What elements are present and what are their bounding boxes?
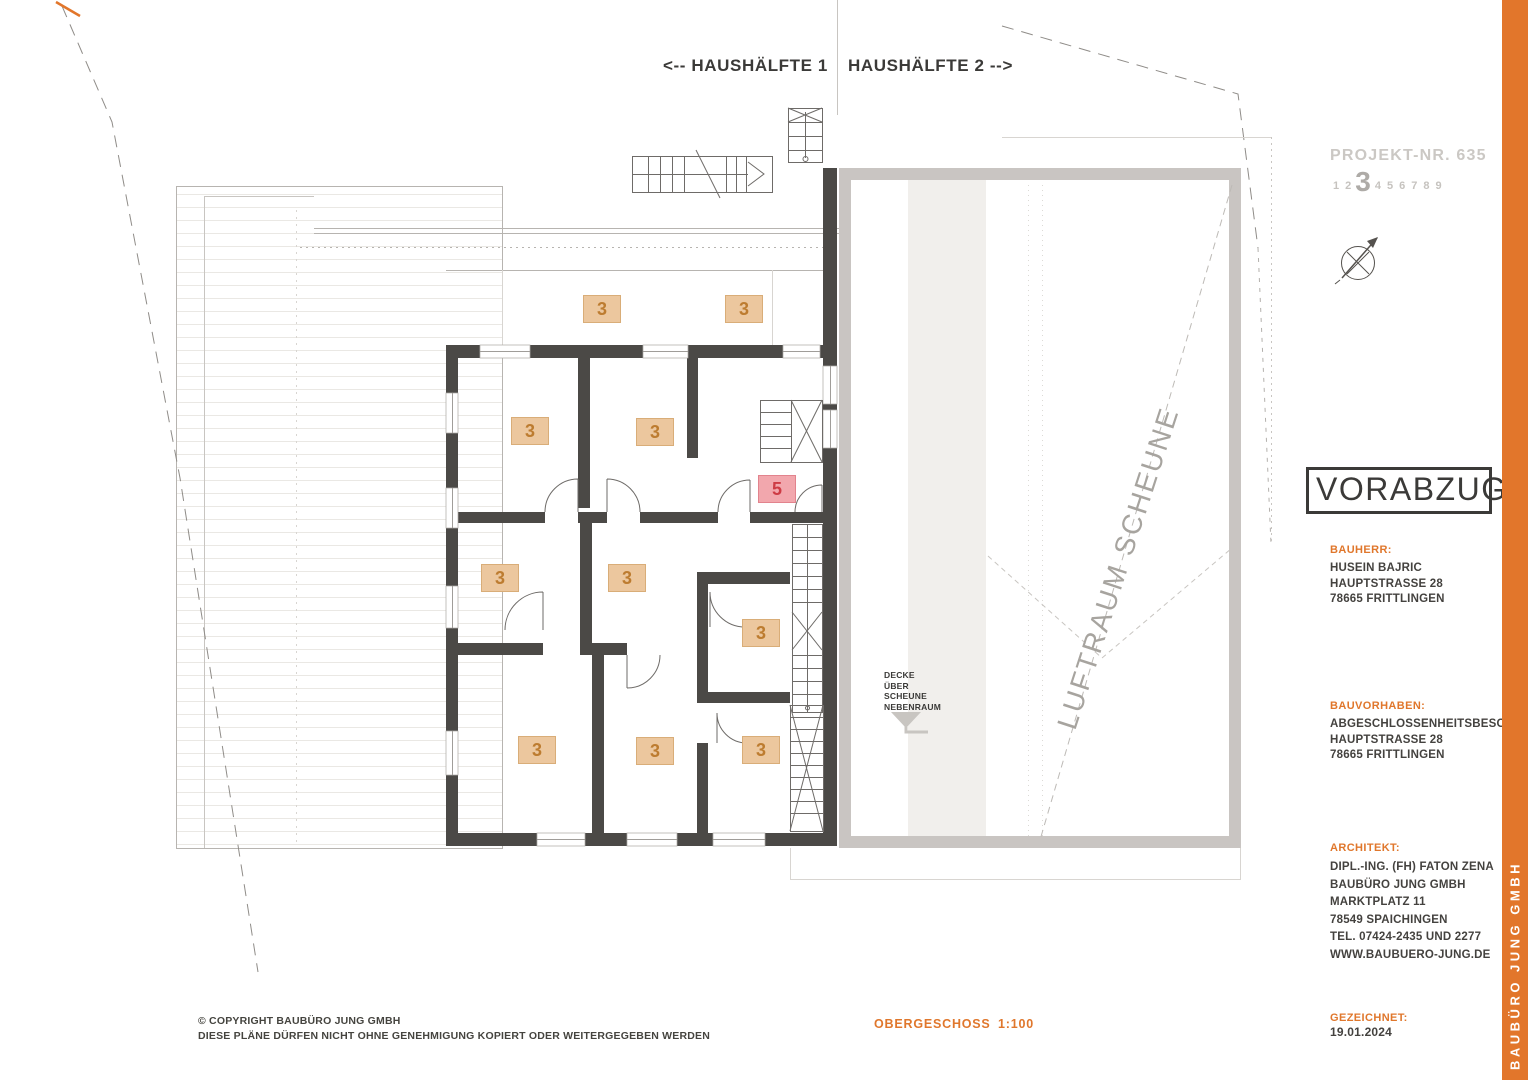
room-marker: 3 [583, 295, 621, 323]
architekt-firm: BAUBÜRO JUNG GMBH [1330, 877, 1494, 895]
project-digit: 6 [1396, 180, 1408, 196]
decke-note-line3: SCHEUNE [884, 691, 941, 702]
decke-note-line4: NEBENRAUM [884, 702, 941, 713]
architekt-title: ARCHITEKT: [1330, 842, 1494, 854]
project-digit: 7 [1408, 180, 1420, 196]
bauherr-block: BAUHERR: HUSEIN BAJRIC HAUPTSTRASSE 28 7… [1330, 544, 1445, 608]
plan-scale: 1:100 [998, 1017, 1034, 1031]
copyright-block: © COPYRIGHT BAUBÜRO JUNG GMBH DIESE PLÄN… [198, 1014, 710, 1044]
bauvorhaben-line3: 78665 FRITTLINGEN [1330, 748, 1528, 764]
project-digit: 5 [1384, 180, 1396, 196]
haushaelfte-1-label: <-- HAUSHÄLFTE 1 [663, 56, 828, 76]
bauherr-title: BAUHERR: [1330, 544, 1445, 556]
gezeichnet-date: 19.01.2024 [1330, 1025, 1408, 1041]
brand-sidebar-label: BAUBÜRO JUNG GMBH [1508, 861, 1523, 1070]
room-marker: 3 [725, 295, 763, 323]
copyright-line2: DIESE PLÄNE DÜRFEN NICHT OHNE GENEHMIGUN… [198, 1029, 710, 1044]
floor-plan-drawing [0, 0, 1528, 1080]
gezeichnet-block: GEZEICHNET: 19.01.2024 [1330, 1012, 1408, 1041]
architekt-city: 78549 SPAICHINGEN [1330, 912, 1494, 930]
bauvorhaben-line1: ABGESCHLOSSENHEITSBESCHEINIGUNG [1330, 717, 1528, 733]
bauvorhaben-title: BAUVORHABEN: [1330, 700, 1528, 712]
stairs [632, 108, 824, 832]
room-marker: 3 [481, 564, 519, 592]
project-digit: 8 [1420, 180, 1432, 196]
scheune-area [839, 168, 1241, 848]
bauherr-street: HAUPTSTRASSE 28 [1330, 577, 1445, 593]
room-marker: 5 [758, 475, 796, 503]
copyright-line1: © COPYRIGHT BAUBÜRO JUNG GMBH [198, 1014, 710, 1029]
room-marker: 3 [742, 736, 780, 764]
haushaelfte-2-label: HAUSHÄLFTE 2 --> [848, 56, 1013, 76]
gezeichnet-title: GEZEICHNET: [1330, 1012, 1408, 1024]
project-digit: 2 [1342, 180, 1354, 196]
project-digit: 3 [1354, 168, 1372, 196]
decke-note-line1: DECKE [884, 670, 941, 681]
vorabzug-stamp: VORABZUG [1306, 467, 1492, 514]
north-compass-icon [1335, 237, 1378, 284]
project-number-label: PROJEKT-NR. 635 [1330, 147, 1487, 165]
project-digits: 123456789 [1330, 168, 1445, 196]
decke-note-line2: ÜBER [884, 681, 941, 692]
room-marker: 3 [518, 736, 556, 764]
room-marker: 3 [608, 564, 646, 592]
room-marker: 3 [511, 417, 549, 445]
architectural-plan-sheet: <-- HAUSHÄLFTE 1 HAUSHÄLFTE 2 --> PROJEK… [0, 0, 1528, 1080]
balcony-strip [446, 270, 837, 345]
project-digit: 4 [1372, 180, 1384, 196]
architekt-block: ARCHITEKT: DIPL.-ING. (FH) FATON ZENA BA… [1330, 842, 1494, 964]
architekt-phone: TEL. 07424-2435 UND 2277 [1330, 929, 1494, 947]
bauvorhaben-line2: HAUPTSTRASSE 28 [1330, 733, 1528, 749]
project-digit: 1 [1330, 180, 1342, 196]
project-digit: 9 [1432, 180, 1444, 196]
bauherr-name: HUSEIN BAJRIC [1330, 561, 1445, 577]
architekt-name: DIPL.-ING. (FH) FATON ZENA [1330, 859, 1494, 877]
bauvorhaben-block: BAUVORHABEN: ABGESCHLOSSENHEITSBESCHEINI… [1330, 700, 1528, 764]
room-marker: 3 [636, 418, 674, 446]
room-marker: 3 [742, 619, 780, 647]
architekt-street: MARKTPLATZ 11 [1330, 894, 1494, 912]
room-marker: 3 [636, 737, 674, 765]
bauherr-city: 78665 FRITTLINGEN [1330, 592, 1445, 608]
architekt-web: WWW.BAUBUERO-JUNG.DE [1330, 947, 1494, 965]
brand-sidebar: BAUBÜRO JUNG GMBH [1502, 0, 1528, 1080]
decke-note: DECKE ÜBER SCHEUNE NEBENRAUM [884, 670, 941, 712]
plan-title: OBERGESCHOSS [874, 1017, 991, 1031]
